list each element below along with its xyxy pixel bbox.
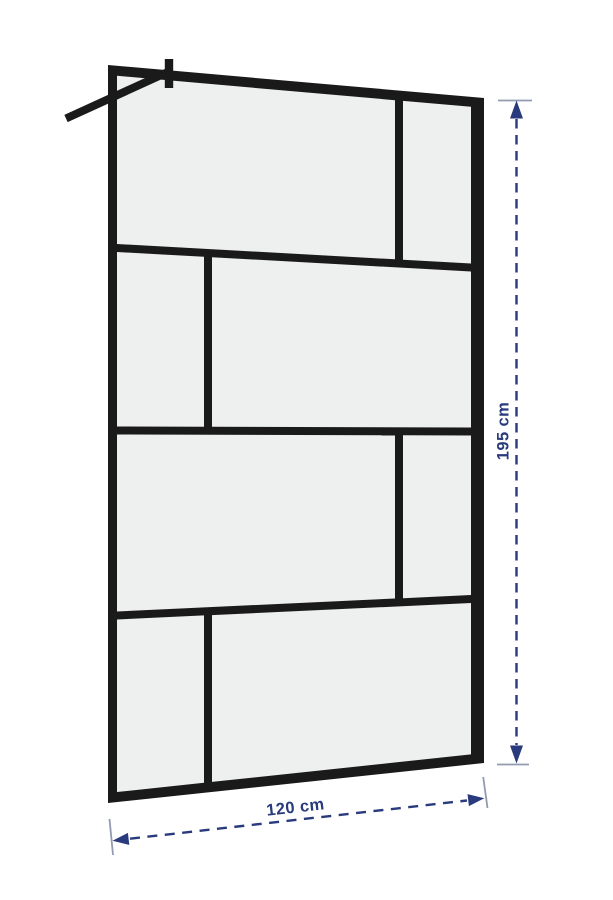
glass-pane-row3-left	[117, 435, 395, 612]
glass-pane-row4-right	[212, 603, 471, 782]
stabilizer-wall-bracket	[165, 59, 173, 88]
height-label: 195 cm	[495, 402, 513, 460]
glass-pane-row4-left	[117, 615, 204, 792]
glass-pane-row1-left	[117, 76, 395, 259]
glass-pane-row2-right	[212, 257, 471, 427]
product-image: 195 cm 120 cm	[0, 0, 613, 900]
glass-pane-row3-right	[403, 435, 471, 598]
shower-screen-diagram: 195 cm 120 cm	[0, 0, 613, 900]
glass-pane-row2-left	[117, 252, 204, 427]
glass-pane-row1-right	[403, 101, 471, 264]
shower-panel	[66, 59, 484, 803]
